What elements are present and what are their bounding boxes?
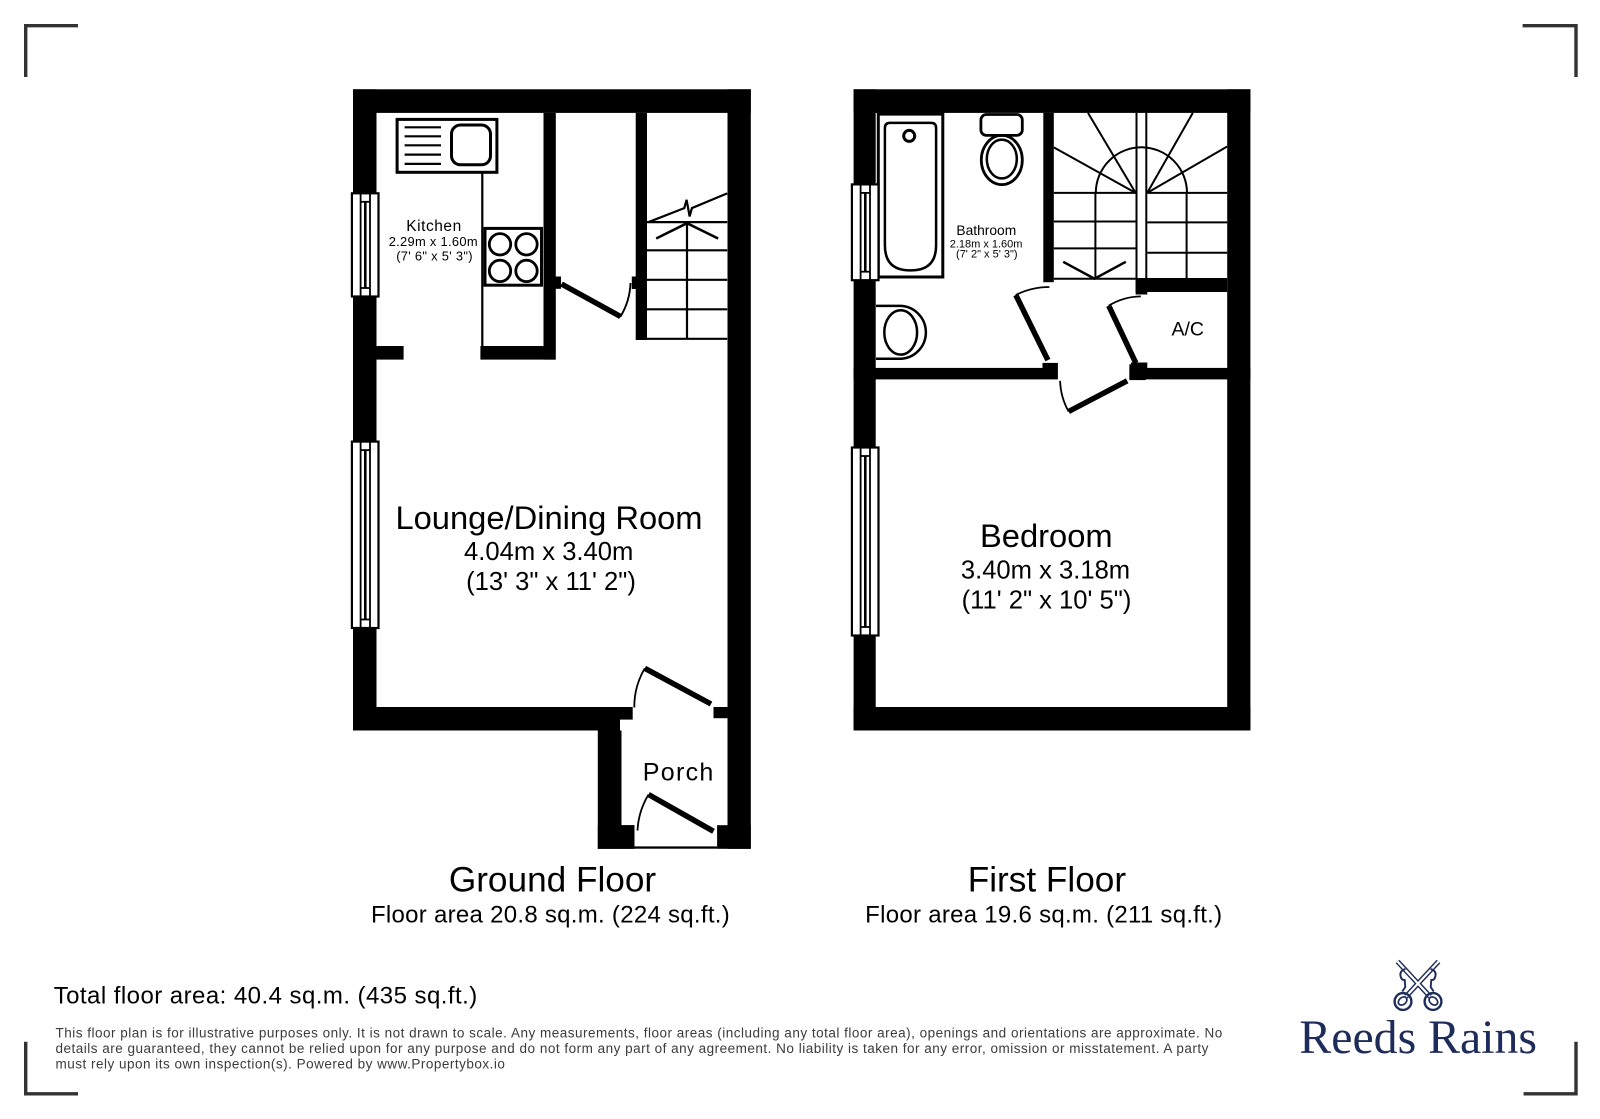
svg-text:Floor area 20.8 sq.m. (224 sq.: Floor area 20.8 sq.m. (224 sq.ft.) <box>371 902 730 929</box>
svg-text:(13' 3" x 11' 2"): (13' 3" x 11' 2") <box>466 568 636 596</box>
svg-text:Floor area 19.6 sq.m. (211 sq.: Floor area 19.6 sq.m. (211 sq.ft.) <box>865 902 1222 929</box>
svg-text:Total floor area: 40.4 sq.m. (: Total floor area: 40.4 sq.m. (435 sq.ft.… <box>54 983 478 1010</box>
svg-text:details are guaranteed, they c: details are guaranteed, they cannot be r… <box>56 1041 1209 1056</box>
svg-text:This floor plan is for illustr: This floor plan is for illustrative purp… <box>56 1025 1223 1040</box>
svg-text:must rely upon its own inspect: must rely upon its own inspection(s). Po… <box>56 1057 506 1072</box>
svg-text:A/C: A/C <box>1171 319 1204 341</box>
svg-text:Kitchen: Kitchen <box>406 218 462 235</box>
svg-text:First Floor: First Floor <box>968 860 1127 899</box>
svg-text:Lounge/Dining Room: Lounge/Dining Room <box>395 499 702 536</box>
svg-text:(11' 2" x 10' 5"): (11' 2" x 10' 5") <box>962 586 1132 614</box>
svg-text:Ground Floor: Ground Floor <box>449 860 657 899</box>
svg-text:Reeds Rains: Reeds Rains <box>1299 1011 1537 1064</box>
svg-text:Bedroom: Bedroom <box>980 517 1113 554</box>
svg-text:(7' 6" x 5' 3"): (7' 6" x 5' 3") <box>396 248 473 263</box>
svg-text:Bathroom: Bathroom <box>956 223 1016 238</box>
svg-text:2.29m x 1.60m: 2.29m x 1.60m <box>389 234 478 249</box>
svg-text:Porch: Porch <box>643 759 715 787</box>
svg-text:3.40m x 3.18m: 3.40m x 3.18m <box>961 557 1130 585</box>
svg-text:4.04m x 3.40m: 4.04m x 3.40m <box>464 538 633 566</box>
svg-text:(7' 2" x 5' 3"): (7' 2" x 5' 3") <box>956 248 1018 260</box>
